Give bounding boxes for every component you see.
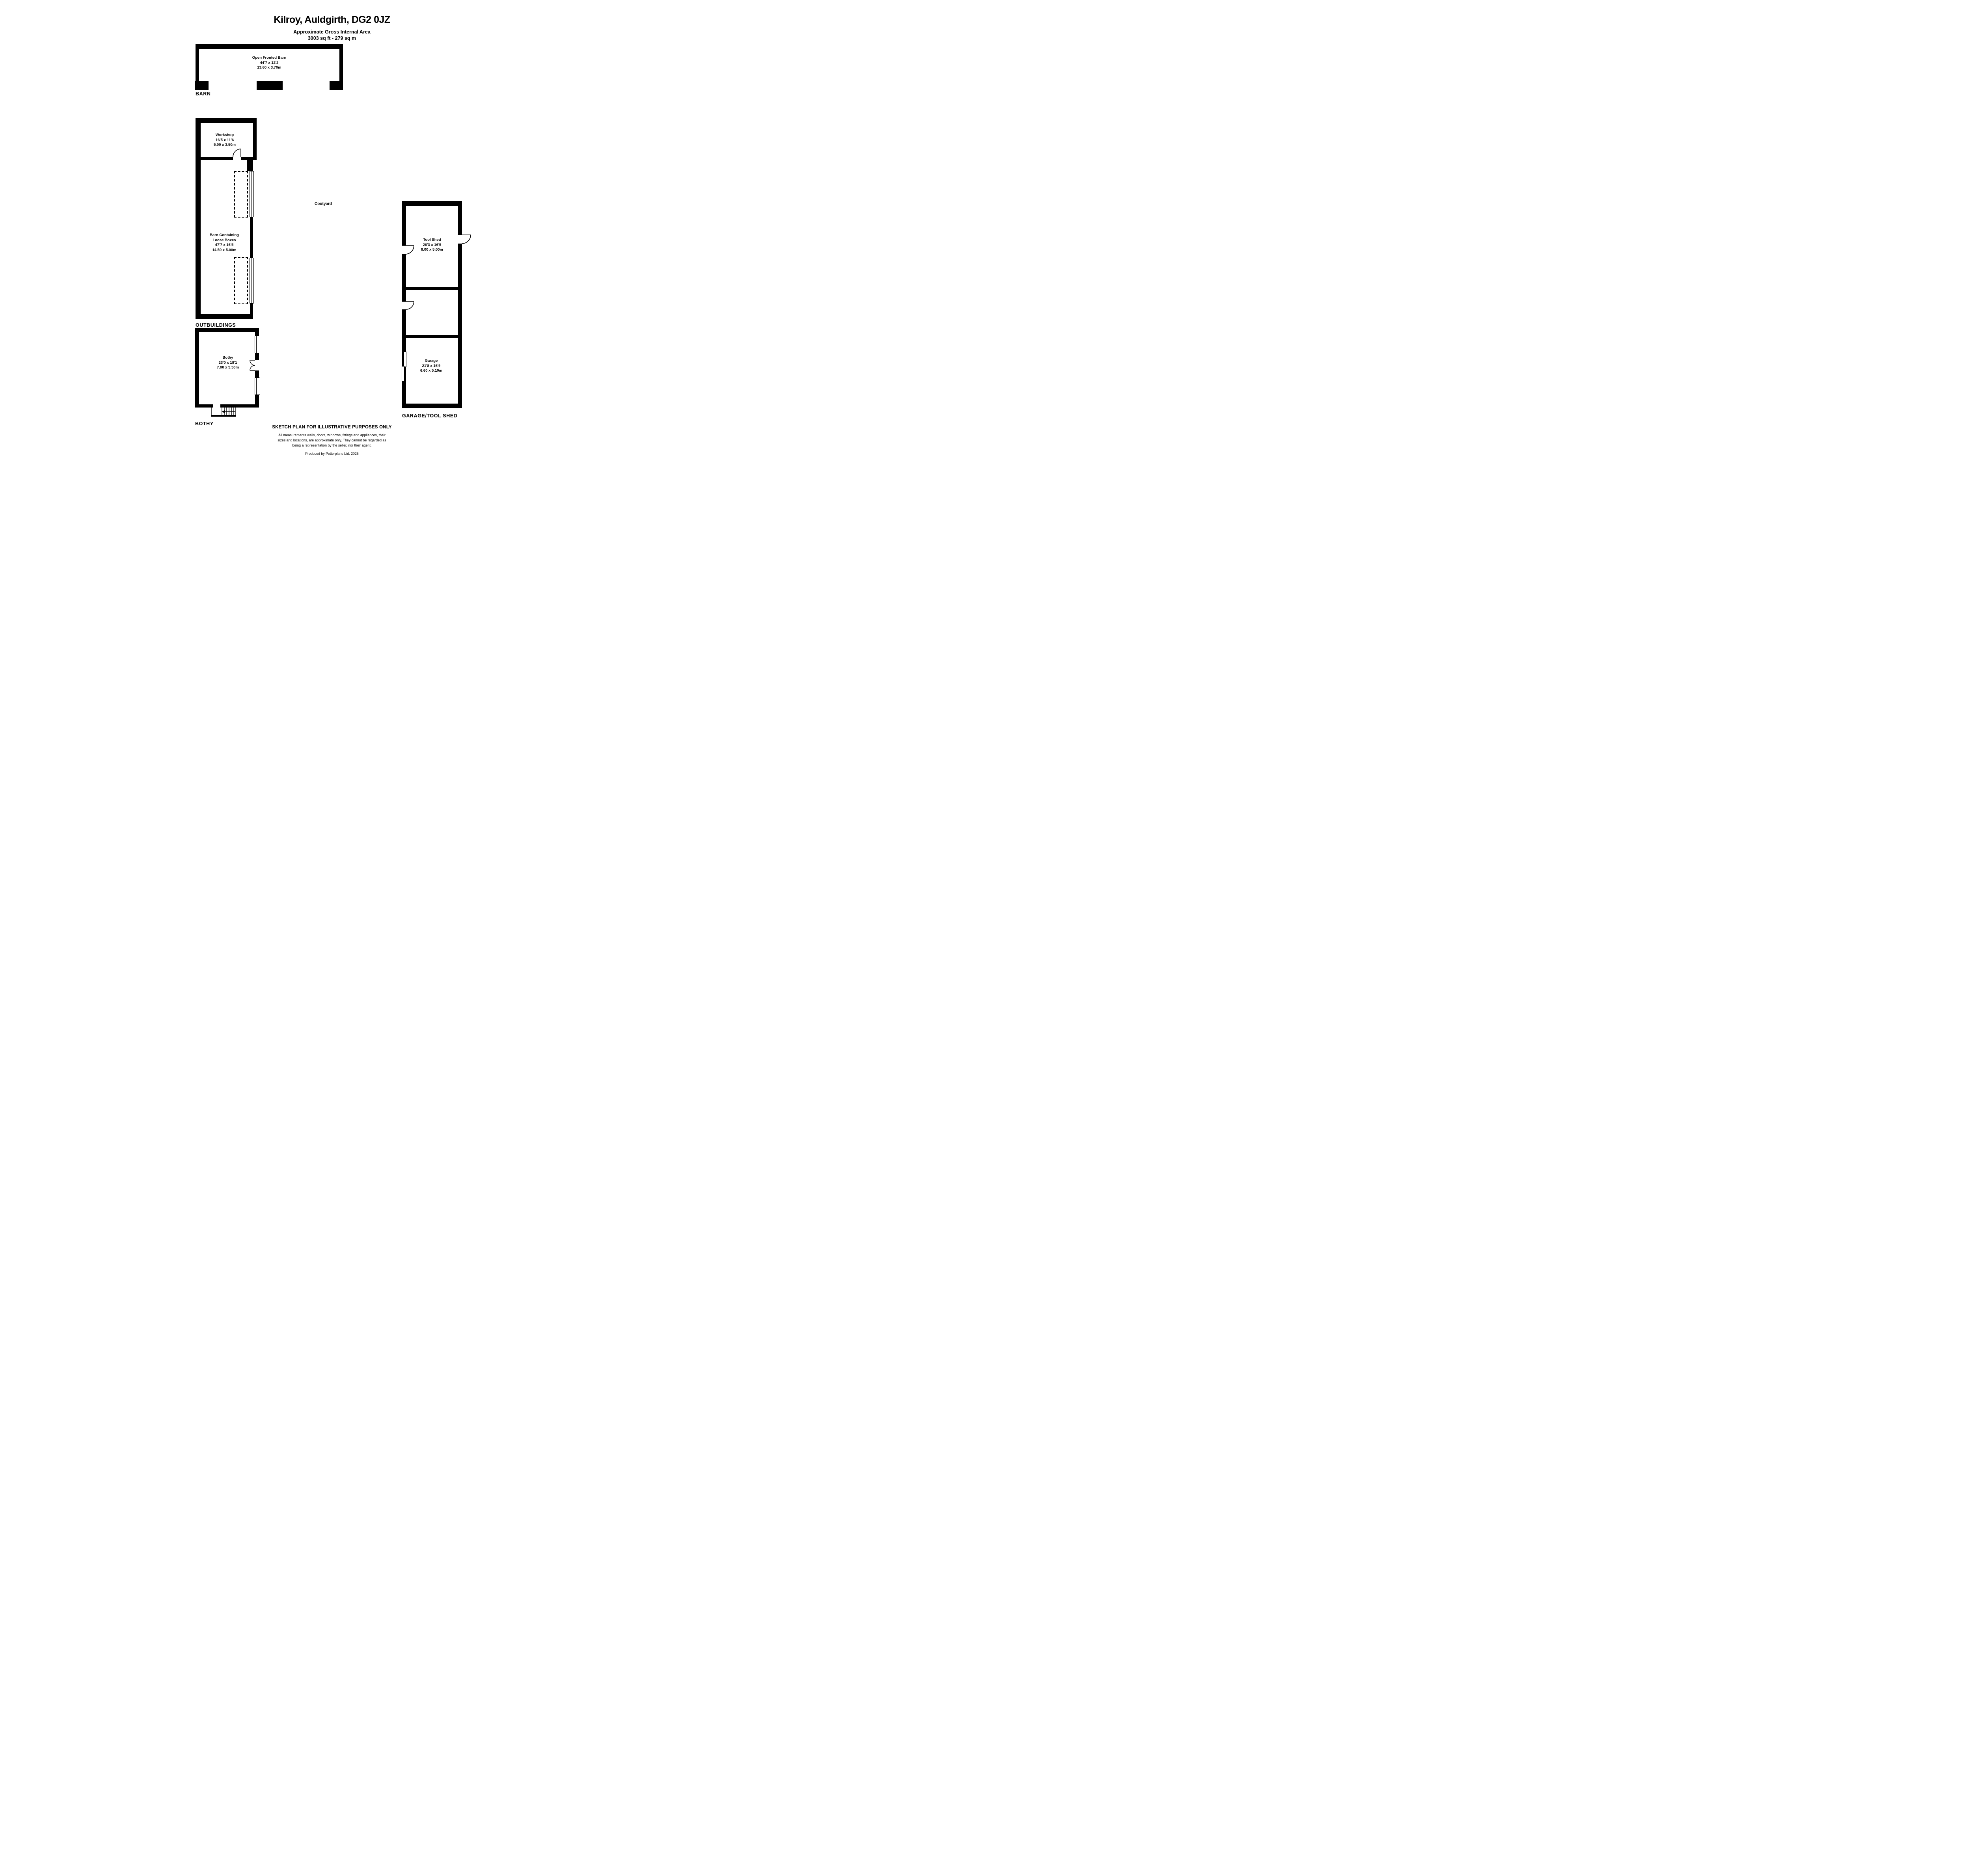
barn-wall-left — [196, 44, 199, 82]
toolshed-right-door-opening — [458, 235, 462, 244]
page-subtitle-area: Approximate Gross Internal Area — [0, 29, 664, 35]
bothy-bottom-opening — [213, 404, 220, 408]
room-garage-imperial: 21'8 x 16'9 — [420, 364, 442, 369]
footer-disclaimer-line3: being a representation by the seller, no… — [0, 443, 664, 448]
room-garage-name: Garage — [420, 359, 442, 364]
room-open-fronted-barn-imperial: 44'7 x 12'2 — [252, 61, 287, 66]
bothy-wall-bottom — [195, 404, 259, 408]
stairs-direction-arrow-icon — [222, 410, 225, 413]
loose-box-dashed-lower — [234, 257, 248, 304]
room-loose-boxes: Barn Containing Loose Boxes 47'7 x 16'5 … — [210, 233, 239, 253]
footer-heading-row: SKETCH PLAN FOR ILLUSTRATIVE PURPOSES ON… — [0, 425, 664, 430]
outbuildings-wall-internal-stub — [241, 157, 253, 160]
barn-pillar-center — [257, 81, 283, 90]
garage-window-lower — [402, 366, 404, 382]
room-loose-boxes-metric: 14.50 x 5.00m — [210, 248, 239, 253]
footer-disclaimer-line1: All measurements walls, doors, windows, … — [0, 433, 664, 438]
barn-wall-top — [196, 44, 343, 49]
room-open-fronted-barn-name: Open Fronted Barn — [252, 56, 287, 61]
middleroom-door-opening — [402, 301, 406, 309]
room-garage-metric: 6.60 x 5.10m — [420, 368, 442, 374]
bothy-wall-left — [195, 328, 199, 408]
floorplan-page: Kilroy, Auldgirth, DG2 0JZ Approximate G… — [0, 0, 664, 469]
outbuildings-window-upper — [250, 171, 254, 217]
outbuildings-wall-internal — [201, 157, 233, 160]
room-loose-boxes-name1: Barn Containing — [210, 233, 239, 238]
plan-linework-overlay — [0, 0, 664, 469]
outbuildings-wall-bottom — [196, 314, 253, 319]
room-garage: Garage 21'8 x 16'9 6.60 x 5.10m — [420, 359, 442, 374]
workshop-door-icon — [233, 149, 241, 157]
bothy-stairs-icon — [211, 408, 236, 416]
garage-bldg-wall-top — [402, 201, 462, 206]
outbuildings-window-lower — [250, 258, 254, 303]
page-subtitle-size: 3003 sq ft - 279 sq m — [0, 35, 664, 41]
outbuildings-wall-right-workshop — [253, 118, 257, 160]
toolshed-internal-wall — [406, 287, 458, 290]
room-bothy-imperial: 23'0 x 18'1 — [217, 361, 239, 366]
barn-pillar-right — [330, 81, 343, 90]
courtyard-label: Coutyard — [315, 202, 332, 207]
bothy-window-upper — [255, 336, 260, 353]
barn-pillar-left — [195, 81, 209, 90]
room-loose-boxes-imperial: 47'7 x 16'5 — [210, 243, 239, 248]
garage-internal-wall — [406, 335, 458, 338]
bothy-door-opening — [255, 360, 259, 370]
bothy-window-lower — [255, 378, 260, 395]
outbuildings-wall-top — [196, 118, 257, 123]
barn-wall-right — [339, 44, 343, 82]
room-workshop-name: Workshop — [214, 133, 236, 138]
room-bothy-metric: 7.00 x 5.50m — [217, 365, 239, 370]
section-label-outbuildings: OUTBUILDINGS — [196, 322, 236, 328]
bothy-porch-bottom-wall — [211, 415, 236, 417]
footer-disclaimer: All measurements walls, doors, windows, … — [0, 433, 664, 448]
toolshed-left-door-opening — [402, 246, 406, 254]
room-tool-shed-imperial: 26'3 x 16'5 — [421, 243, 443, 248]
garage-window-upper — [404, 352, 406, 367]
room-tool-shed-name: Tool Shed — [421, 238, 443, 243]
room-bothy: Bothy 23'0 x 18'1 7.00 x 5.50m — [217, 355, 239, 370]
room-tool-shed: Tool Shed 26'3 x 16'5 8.00 x 5.00m — [421, 238, 443, 253]
garage-bldg-wall-right — [458, 201, 462, 408]
section-label-barn: BARN — [196, 91, 211, 97]
footer-credit-row: Produced by Potterplans Ltd. 2025 — [0, 452, 664, 456]
footer-disclaimer-line2: sizes and locations, are approximate onl… — [0, 438, 664, 443]
garage-bldg-wall-bottom — [402, 404, 462, 408]
footer-heading: SKETCH PLAN FOR ILLUSTRATIVE PURPOSES ON… — [0, 425, 664, 430]
room-loose-boxes-name2: Loose Boxes — [210, 238, 239, 243]
room-tool-shed-metric: 8.00 x 5.00m — [421, 248, 443, 253]
page-title: Kilroy, Auldgirth, DG2 0JZ — [0, 14, 664, 26]
room-open-fronted-barn-metric: 13.60 x 3.70m — [252, 65, 287, 71]
outbuildings-wall-corner-block — [247, 160, 253, 171]
room-workshop: Workshop 16'5 x 11'6 5.00 x 3.50m — [214, 133, 236, 148]
bothy-wall-top — [195, 328, 259, 332]
title-block: Kilroy, Auldgirth, DG2 0JZ Approximate G… — [0, 14, 664, 41]
room-workshop-imperial: 16'5 x 11'6 — [214, 138, 236, 143]
section-label-garage-tool-shed: GARAGE/TOOL SHED — [402, 413, 457, 419]
room-workshop-metric: 5.00 x 3.50m — [214, 143, 236, 148]
loose-box-dashed-upper — [234, 171, 248, 218]
room-open-fronted-barn: Open Fronted Barn 44'7 x 12'2 13.60 x 3.… — [252, 56, 287, 71]
room-bothy-name: Bothy — [217, 355, 239, 361]
outbuildings-wall-left — [196, 118, 201, 319]
footer-credit: Produced by Potterplans Ltd. 2025 — [0, 452, 664, 456]
